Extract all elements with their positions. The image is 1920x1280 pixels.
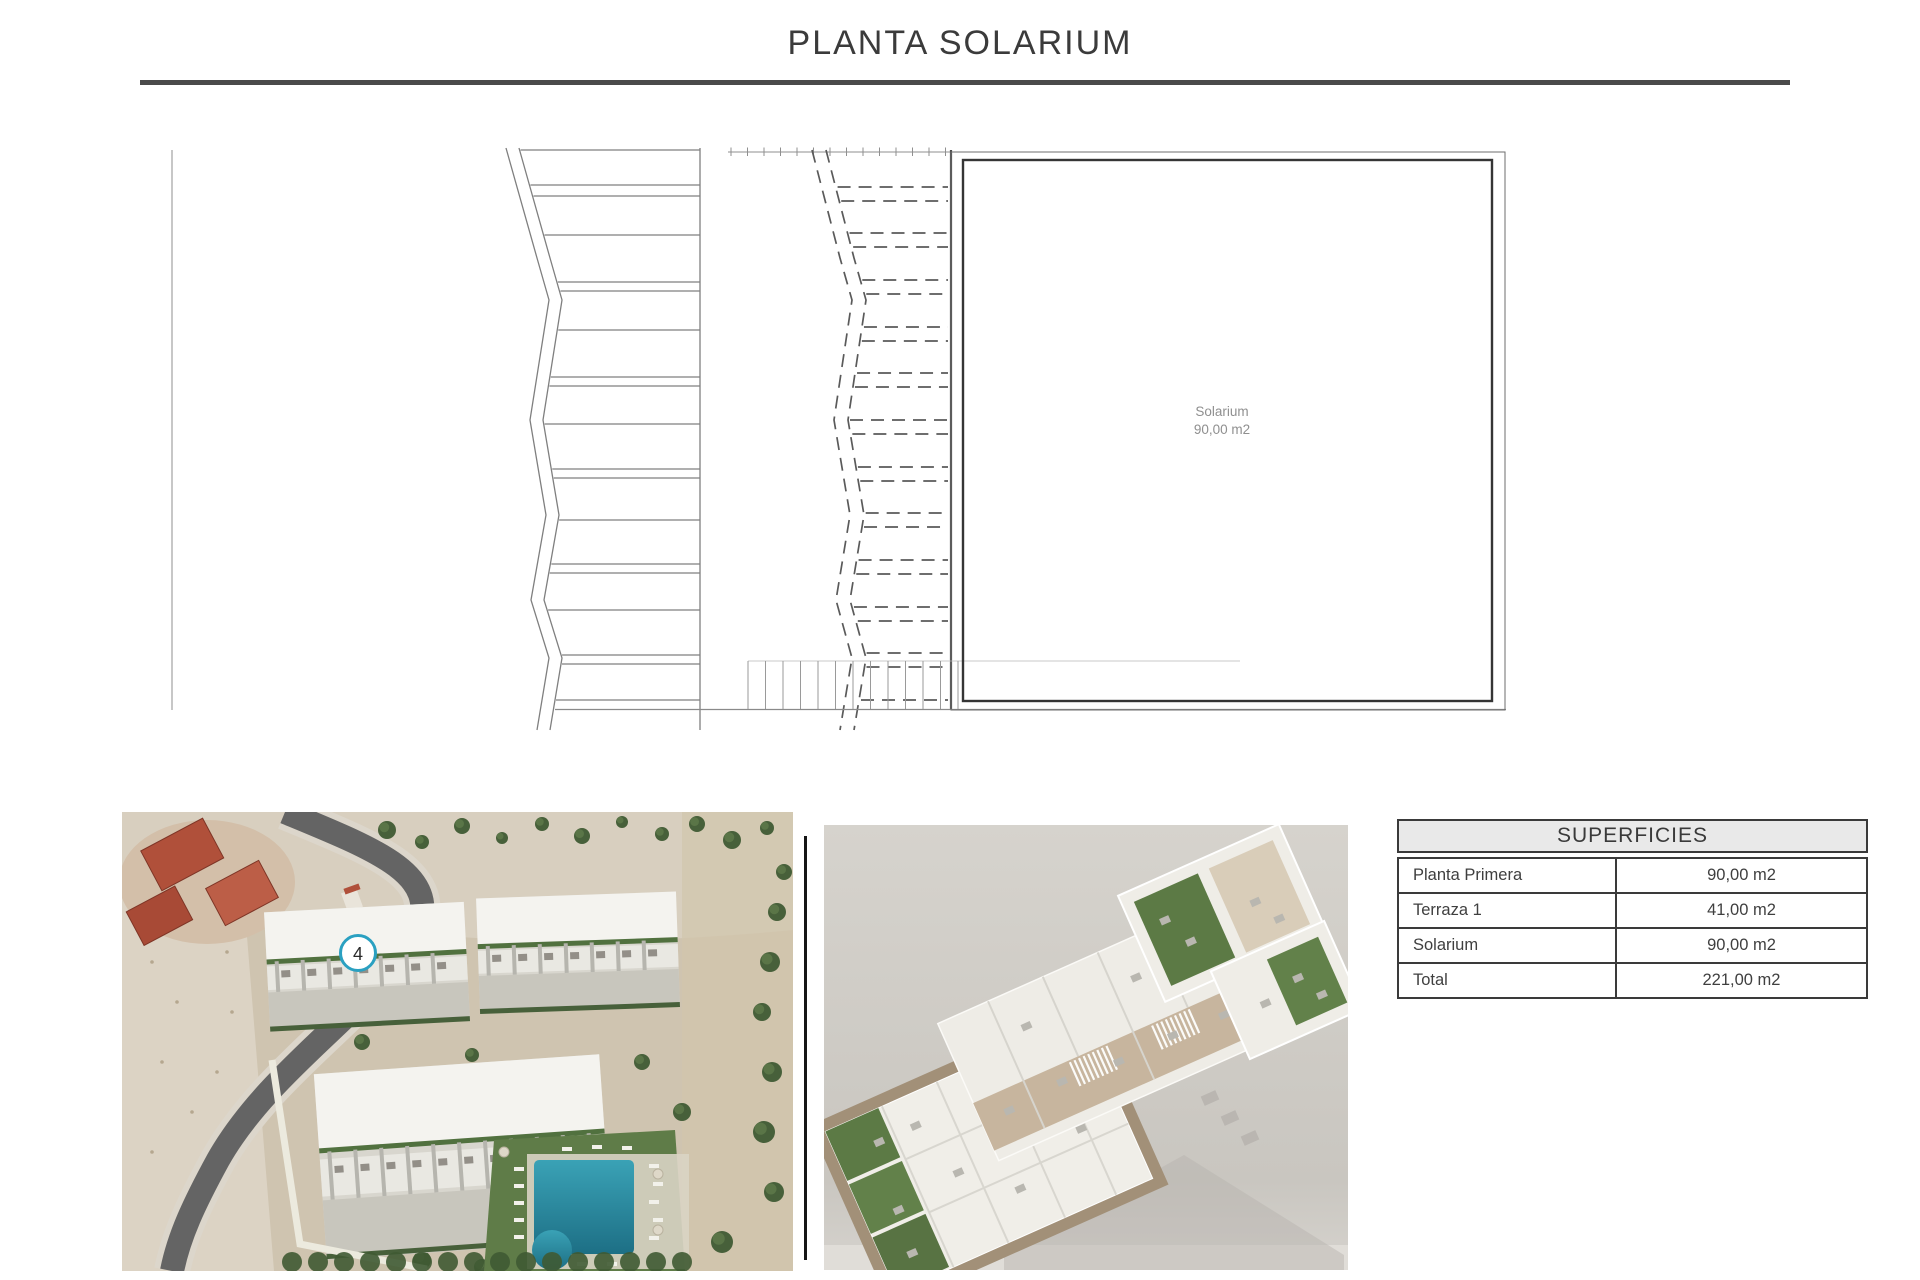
row-value: 90,00 m2 [1617,929,1866,962]
title-rule [140,80,1790,85]
row-label: Solarium [1399,929,1617,962]
page-title: PLANTA SOLARIUM [0,24,1920,63]
plan-solarium-room: Solarium 90,00 m2 [951,152,1505,710]
unit-marker-number: 4 [353,944,363,964]
plan-tick-line [728,148,962,157]
document-page: PLANTA SOLARIUM [0,0,1920,1280]
table-row: Total 221,00 m2 [1399,962,1866,997]
row-label: Planta Primera [1399,859,1617,892]
pool-area [484,1130,689,1271]
surfaces-title: SUPERFICIES [1557,824,1708,848]
table-row: Planta Primera 90,00 m2 [1399,859,1866,892]
row-label: Total [1399,964,1617,997]
row-value: 221,00 m2 [1617,964,1866,997]
surfaces-table-body: Planta Primera 90,00 m2 Terraza 1 41,00 … [1397,857,1868,999]
room-label: Solarium [1195,404,1248,419]
row-value: 41,00 m2 [1617,894,1866,927]
unit-4-marker: 4 [341,936,376,971]
image-divider [804,836,807,1260]
plan-solid-wall [506,148,700,730]
table-row: Terraza 1 41,00 m2 [1399,892,1866,927]
row-label: Terraza 1 [1399,894,1617,927]
isometric-floorplan-render [824,825,1348,1270]
aerial-site-photo: 4 [122,812,793,1271]
table-row: Solarium 90,00 m2 [1399,927,1866,962]
row-value: 90,00 m2 [1617,859,1866,892]
solarium-floor-plan: Solarium 90,00 m2 [150,135,1530,740]
plan-dashed-wall [812,150,948,730]
room-area: 90,00 m2 [1194,422,1250,437]
surfaces-table: SUPERFICIES Planta Primera 90,00 m2 Terr… [1397,819,1868,999]
surfaces-table-header: SUPERFICIES [1397,819,1868,853]
